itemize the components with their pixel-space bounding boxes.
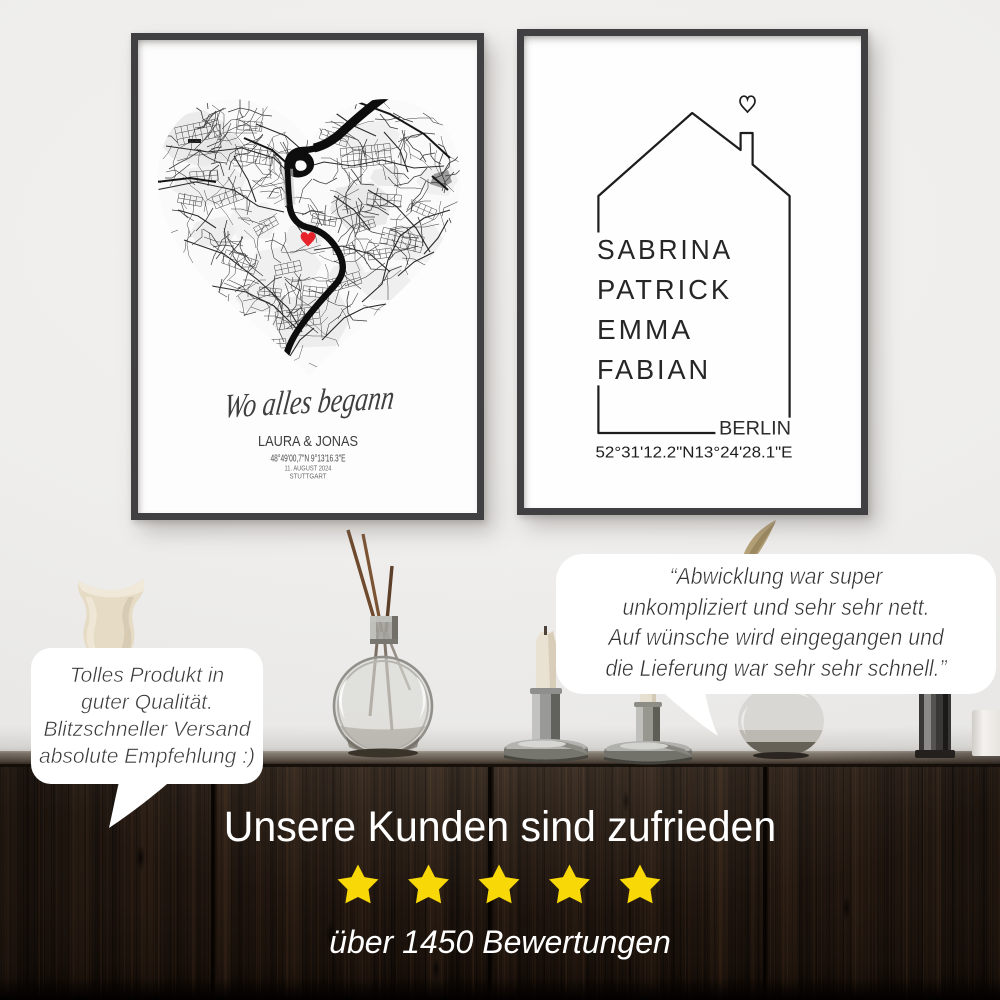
svg-text:BERLIN: BERLIN (719, 419, 791, 440)
svg-text:EMMA: EMMA (597, 314, 693, 345)
svg-text:PATRICK: PATRICK (597, 274, 732, 305)
svg-text:SABRINA: SABRINA (597, 234, 733, 265)
svg-text:STUTTGART: STUTTGART (290, 472, 327, 481)
svg-text:LAURA & JONAS: LAURA & JONAS (258, 433, 358, 450)
svg-text:Wo alles begann: Wo alles begann (222, 379, 396, 426)
svg-text:52°31'12.2"N13°24'28.1"E: 52°31'12.2"N13°24'28.1"E (596, 445, 793, 462)
svg-text:FABIAN: FABIAN (597, 354, 711, 385)
